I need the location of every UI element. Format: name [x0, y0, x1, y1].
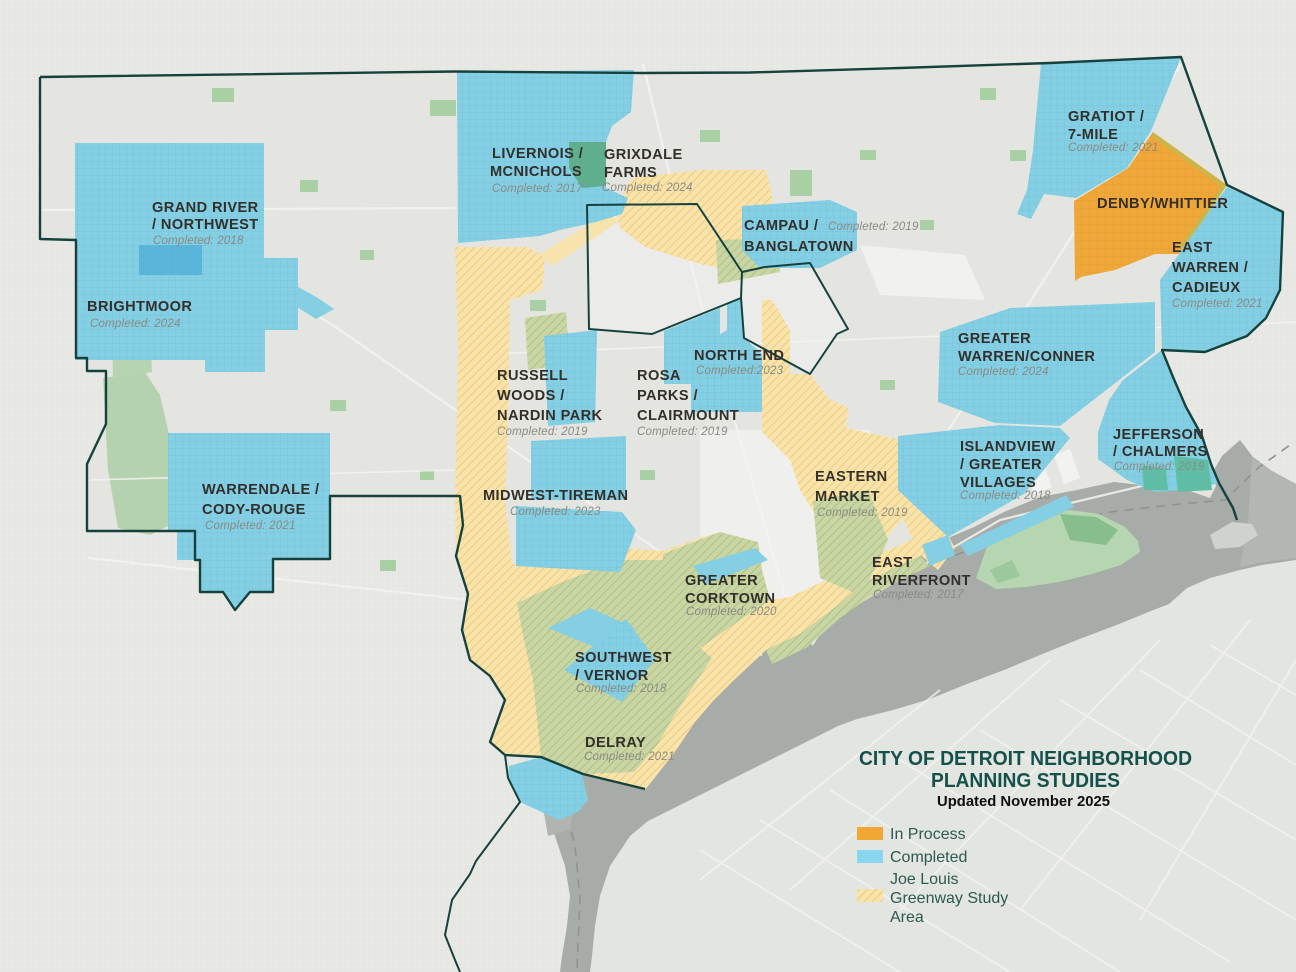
svg-text:/ NORTHWEST: / NORTHWEST	[152, 217, 259, 233]
svg-text:Completed: 2024: Completed: 2024	[90, 318, 181, 330]
svg-text:WARRENDALE /: WARRENDALE /	[202, 482, 320, 498]
svg-text:Completed: 2021: Completed: 2021	[1068, 142, 1159, 154]
svg-text:CITY OF DETROIT NEIGHBORHOOD: CITY OF DETROIT NEIGHBORHOOD	[859, 747, 1192, 770]
svg-text:Completed: 2019: Completed: 2019	[637, 426, 728, 438]
svg-text:VILLAGES: VILLAGES	[960, 475, 1036, 491]
svg-text:Completed: 2018: Completed: 2018	[960, 490, 1051, 502]
svg-text:WOODS /: WOODS /	[497, 388, 565, 404]
svg-text:Completed: 2018: Completed: 2018	[153, 235, 244, 247]
svg-text:CLAIRMOUNT: CLAIRMOUNT	[637, 408, 739, 424]
svg-text:Completed: 2018: Completed: 2018	[576, 683, 667, 695]
svg-text:FARMS: FARMS	[604, 165, 657, 181]
svg-text:Completed: 2019: Completed: 2019	[817, 507, 908, 519]
svg-text:GRIXDALE: GRIXDALE	[604, 147, 683, 163]
svg-text:Completed: 2017: Completed: 2017	[492, 183, 583, 195]
svg-text:DENBY/WHITTIER: DENBY/WHITTIER	[1097, 196, 1228, 212]
svg-text:PARKS /: PARKS /	[637, 388, 698, 404]
svg-text:Completed: 2019: Completed: 2019	[1114, 461, 1205, 473]
svg-text:Area: Area	[890, 909, 924, 926]
svg-text:Completed: 2024: Completed: 2024	[958, 366, 1049, 378]
svg-text:/ CHALMERS: / CHALMERS	[1113, 444, 1208, 460]
svg-text:/ GREATER: / GREATER	[960, 457, 1042, 473]
svg-text:RIVERFRONT: RIVERFRONT	[872, 573, 971, 589]
svg-text:WARREN /: WARREN /	[1172, 260, 1248, 276]
svg-text:PLANNING STUDIES: PLANNING STUDIES	[931, 769, 1120, 792]
svg-text:GREATER: GREATER	[685, 573, 758, 589]
svg-text:CAMPAU /: CAMPAU /	[744, 218, 818, 234]
svg-text:Completed: 2021: Completed: 2021	[205, 520, 296, 532]
svg-text:GREATER: GREATER	[958, 331, 1031, 347]
svg-text:JEFFERSON: JEFFERSON	[1113, 427, 1204, 443]
svg-text:CORKTOWN: CORKTOWN	[685, 591, 776, 607]
svg-text:MARKET: MARKET	[815, 489, 880, 505]
svg-text:BANGLATOWN: BANGLATOWN	[744, 239, 854, 255]
svg-text:MCNICHOLS: MCNICHOLS	[490, 164, 582, 180]
svg-text:Completed: 2024: Completed: 2024	[602, 182, 693, 194]
svg-text:Completed: 2021: Completed: 2021	[584, 751, 675, 763]
svg-text:DELRAY: DELRAY	[585, 735, 646, 751]
svg-text:Joe Louis: Joe Louis	[890, 871, 959, 888]
svg-text:CODY-ROUGE: CODY-ROUGE	[202, 502, 306, 518]
svg-text:ROSA: ROSA	[637, 368, 681, 384]
svg-text:BRIGHTMOOR: BRIGHTMOOR	[87, 299, 192, 315]
svg-text:NORTH END: NORTH END	[694, 348, 784, 364]
svg-text:SOUTHWEST: SOUTHWEST	[575, 650, 672, 666]
svg-text:Completed: 2017: Completed: 2017	[873, 589, 964, 601]
svg-text:Updated November 2025: Updated November 2025	[937, 794, 1110, 810]
svg-text:GRAND RIVER: GRAND RIVER	[152, 200, 259, 216]
svg-text:RUSSELL: RUSSELL	[497, 368, 568, 384]
svg-text:GRATIOT /: GRATIOT /	[1068, 109, 1144, 125]
svg-text:LIVERNOIS /: LIVERNOIS /	[492, 146, 583, 162]
svg-text:Completed: 2023: Completed: 2023	[510, 506, 601, 518]
svg-text:/ VERNOR: / VERNOR	[575, 668, 649, 684]
svg-text:EAST: EAST	[1172, 240, 1213, 256]
svg-text:MIDWEST-TIREMAN: MIDWEST-TIREMAN	[483, 488, 628, 504]
svg-text:CADIEUX: CADIEUX	[1172, 280, 1240, 296]
svg-text:Completed: 2021: Completed: 2021	[1172, 298, 1263, 310]
svg-text:Completed:2023: Completed:2023	[696, 365, 784, 377]
svg-text:NARDIN PARK: NARDIN PARK	[497, 408, 603, 424]
svg-text:Completed: 2019: Completed: 2019	[497, 426, 588, 438]
svg-text:EASTERN: EASTERN	[815, 469, 888, 485]
svg-text:In Process: In Process	[890, 826, 966, 843]
svg-text:Greenway Study: Greenway Study	[890, 890, 1008, 907]
svg-text:Completed: Completed	[890, 849, 967, 866]
svg-text:Completed: 2019: Completed: 2019	[828, 221, 919, 233]
svg-text:7-MILE: 7-MILE	[1068, 127, 1118, 143]
svg-text:Completed: 2020: Completed: 2020	[686, 606, 777, 618]
svg-text:WARREN/CONNER: WARREN/CONNER	[958, 349, 1095, 365]
svg-text:ISLANDVIEW: ISLANDVIEW	[960, 439, 1056, 455]
svg-text:EAST: EAST	[872, 555, 913, 571]
